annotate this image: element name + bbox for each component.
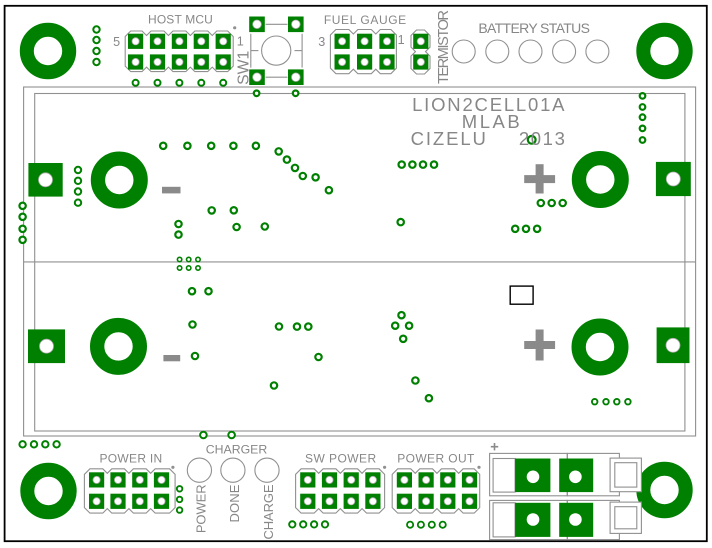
- svg-text:CHARGER: CHARGER: [206, 442, 268, 456]
- svg-text:DONE: DONE: [227, 484, 242, 522]
- svg-text:5: 5: [113, 35, 120, 49]
- svg-text:FUEL GAUGE: FUEL GAUGE: [324, 13, 407, 27]
- svg-text:SW POWER: SW POWER: [305, 452, 377, 466]
- svg-text:POWER: POWER: [193, 485, 208, 534]
- svg-text:1: 1: [398, 33, 405, 47]
- svg-text:2013: 2013: [519, 128, 567, 149]
- svg-text:CHARGE: CHARGE: [261, 484, 276, 539]
- svg-text:CIZELU: CIZELU: [411, 128, 488, 149]
- svg-text:POWER IN: POWER IN: [99, 452, 162, 466]
- svg-text:HOST MCU: HOST MCU: [148, 13, 213, 27]
- svg-text:3: 3: [318, 35, 325, 49]
- svg-text:SW1: SW1: [236, 50, 253, 84]
- svg-text:BATTERY STATUS: BATTERY STATUS: [478, 20, 589, 36]
- svg-text:POWER OUT: POWER OUT: [397, 452, 475, 466]
- svg-text:1: 1: [237, 34, 244, 48]
- svg-text:TERMISTOR: TERMISTOR: [436, 11, 452, 84]
